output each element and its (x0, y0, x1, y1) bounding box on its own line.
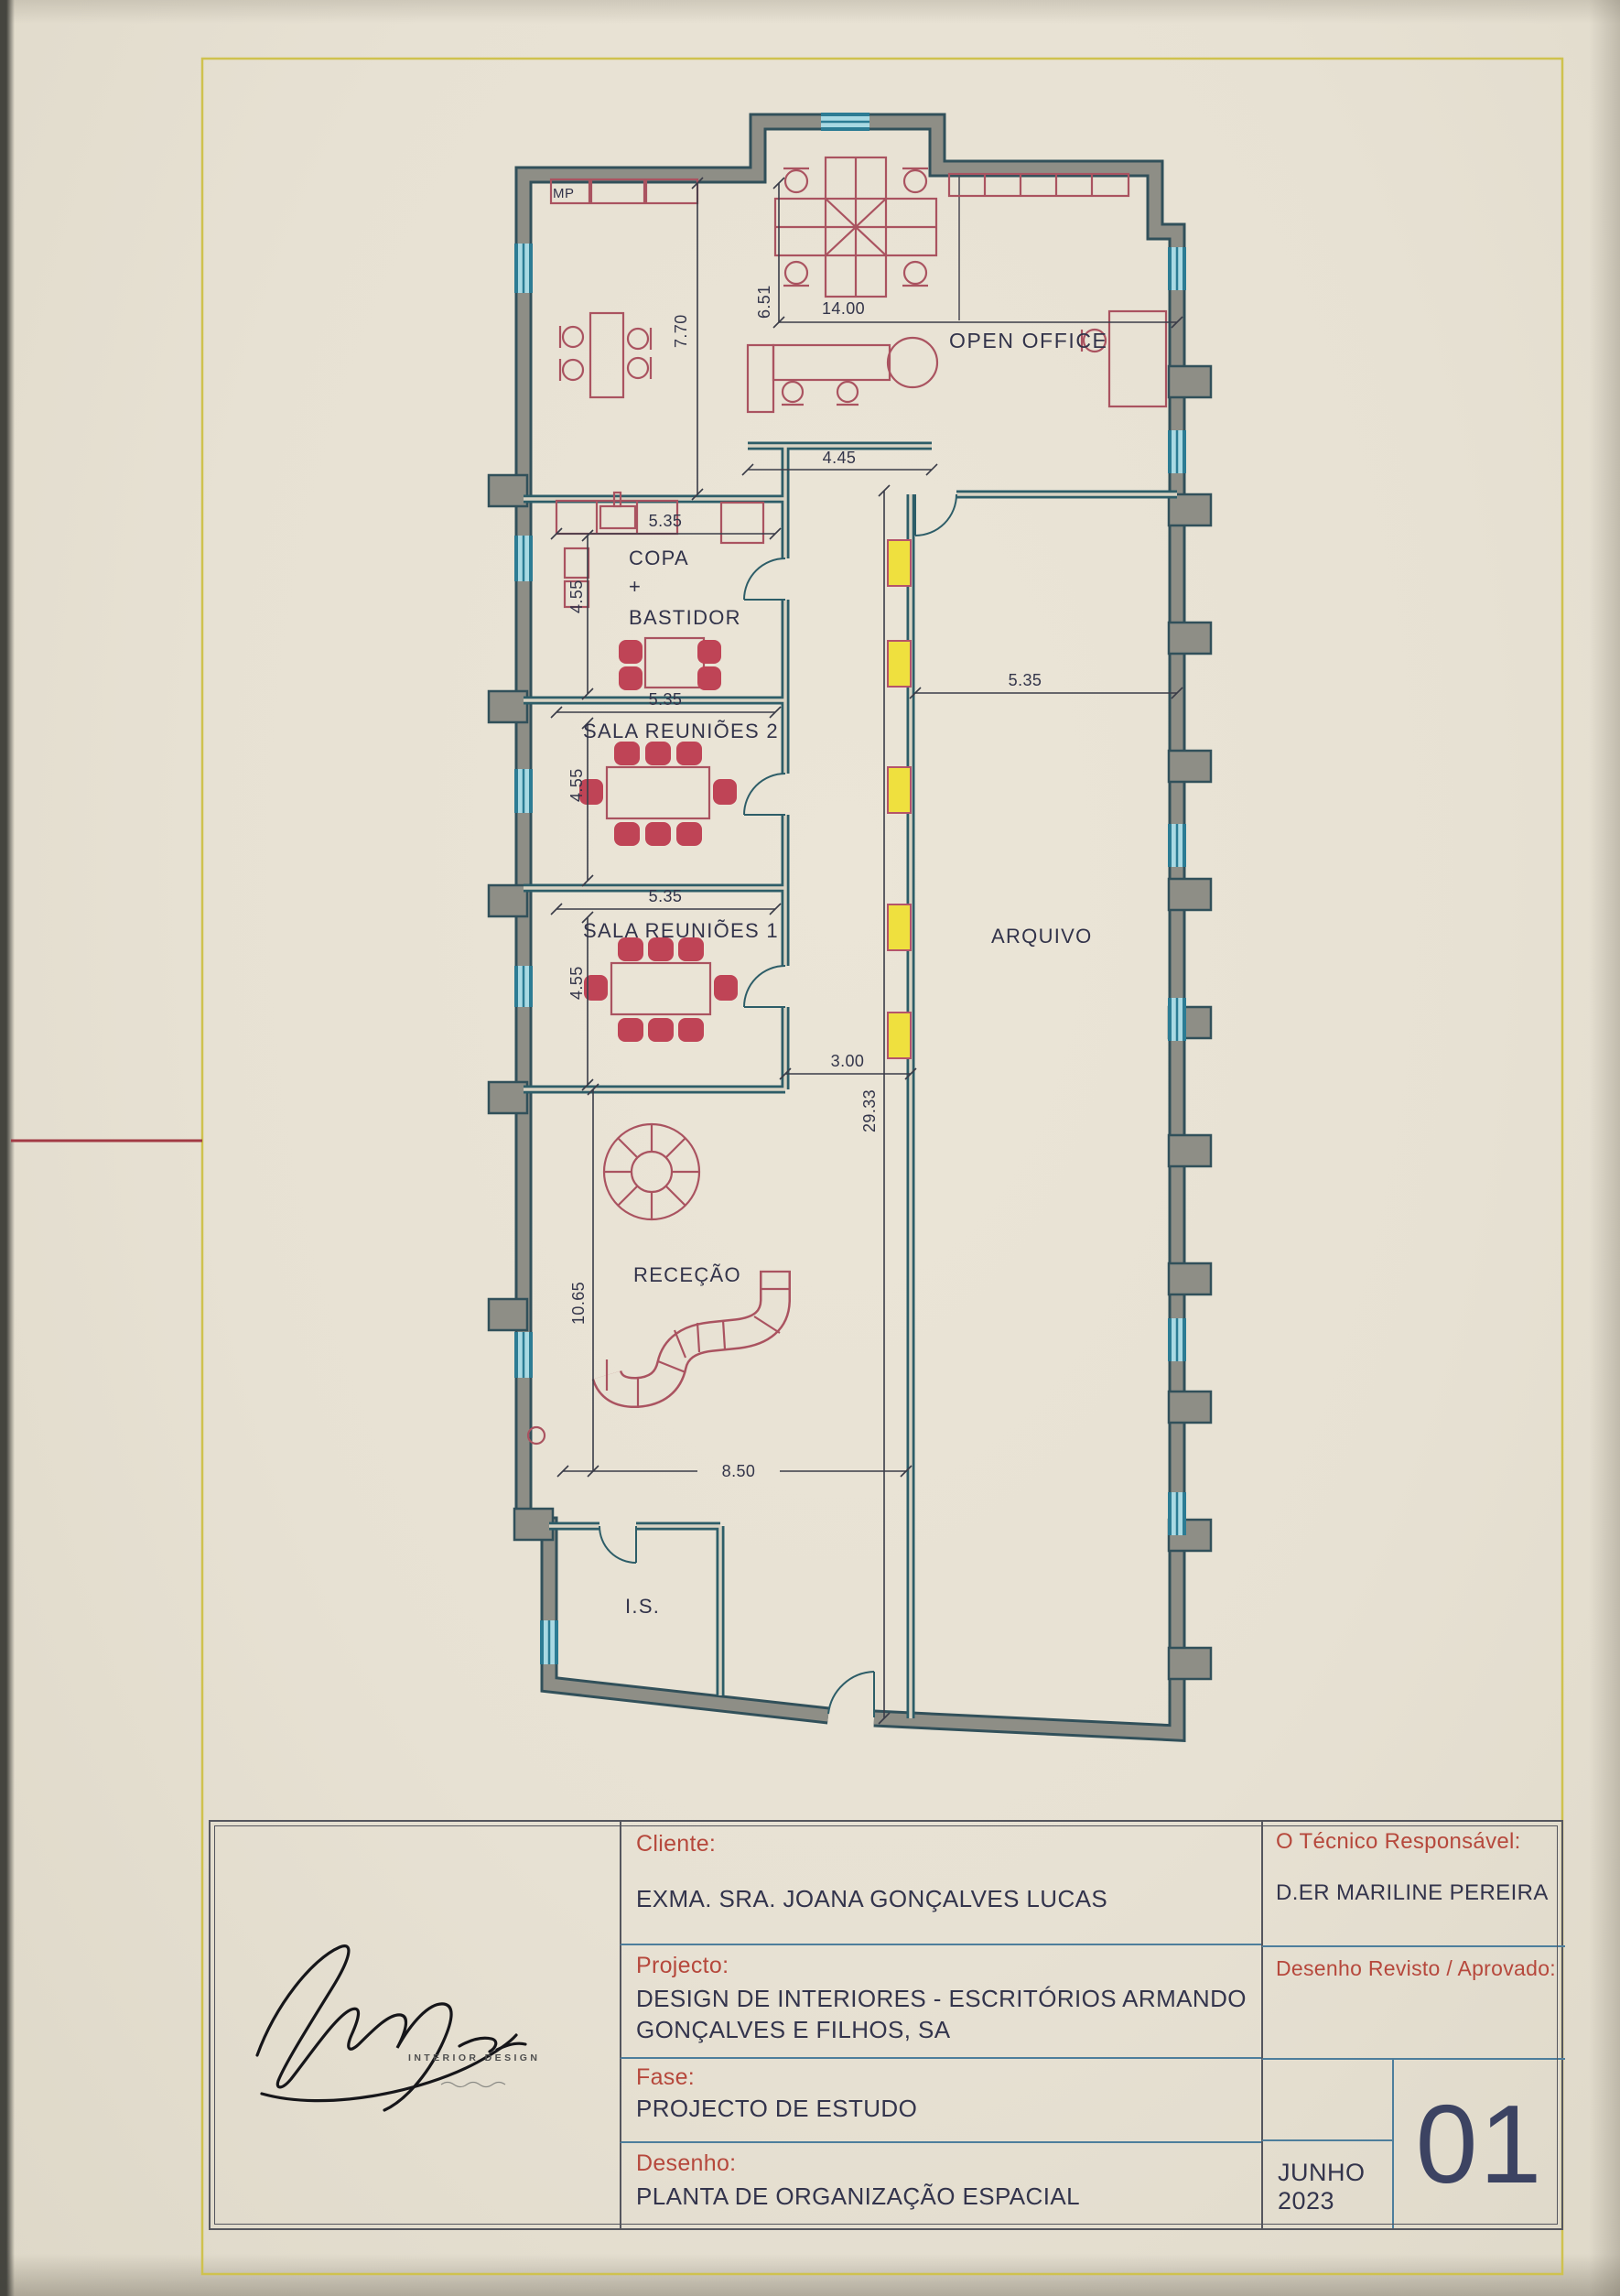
room-label-open-office: OPEN OFFICE (949, 329, 1108, 352)
date-value: JUNHO 2023 (1278, 2159, 1392, 2215)
revisto-cell: Desenho Revisto / Aprovado: (1261, 1947, 1565, 2060)
logo-cell: INTERIOR DESIGN (211, 1822, 620, 2228)
dim-corridor-len: 29.33 (860, 1089, 879, 1132)
windows (524, 122, 1177, 1664)
date-cell: JUNHO 2023 (1261, 2141, 1394, 2228)
desk-cluster (775, 157, 936, 297)
dim-copa-h: 4.55 (567, 579, 586, 613)
dim-sala2-h: 4.55 (567, 768, 586, 802)
room-label-sala2: SALA REUNIÕES 2 (583, 720, 779, 742)
fase-label: Fase: (636, 2064, 1261, 2091)
dim-copa-w: 5.35 (649, 512, 683, 530)
room-label-is: I.S. (625, 1595, 660, 1618)
room-label-bastidor: BASTIDOR (629, 606, 741, 629)
copa-table (645, 638, 704, 688)
dim-top-width: 14.00 (822, 299, 865, 318)
cabinet-row (949, 174, 1129, 196)
dimension-lines (551, 178, 1183, 1724)
desenho-value: PLANTA DE ORGANIZAÇÃO ESPACIAL (636, 2182, 1261, 2211)
dim-sala1-w: 5.35 (649, 887, 683, 905)
dim-left-height: 7.70 (672, 314, 690, 348)
fase-value: PROJECTO DE ESTUDO (636, 2095, 1261, 2123)
tecnico-value: D.ER MARILINE PEREIRA (1276, 1880, 1565, 1906)
meeting-table-1 (611, 963, 710, 1014)
reception-desk (607, 1272, 791, 1408)
room-label-rececao: RECEÇÃO (633, 1263, 741, 1286)
desenho-cell: Desenho: PLANTA DE ORGANIZAÇÃO ESPACIAL (620, 2143, 1261, 2228)
dim-partition: 4.45 (823, 449, 857, 467)
projecto-label: Projecto: (636, 1953, 1261, 1979)
right-desk (1082, 311, 1166, 406)
cliente-value: EXMA. SRA. JOANA GONÇALVES LUCAS (636, 1885, 1261, 1913)
ring-sofa (604, 1124, 699, 1219)
meeting-table-2 (607, 767, 709, 818)
cliente-label: Cliente: (636, 1831, 1261, 1857)
room-label-copa: COPA (629, 547, 689, 569)
dim-arquivo-w: 5.35 (1009, 671, 1042, 689)
desenho-label: Desenho: (636, 2150, 1261, 2177)
room-label-sala1: SALA REUNIÕES 1 (583, 919, 779, 942)
cliente-cell: Cliente: EXMA. SRA. JOANA GONÇALVES LUCA… (620, 1822, 1261, 1945)
tecnico-cell: O Técnico Responsável: D.ER MARILINE PER… (1261, 1822, 1565, 1947)
room-label-plus: + (629, 575, 642, 598)
room-label-mp: MP (553, 186, 575, 201)
scanned-sheet: 6.51 14.00 7.70 4.45 5.35 4.55 5.35 4.55… (0, 0, 1620, 2296)
sheet-number-cell: 01 (1394, 2060, 1565, 2228)
dim-sala1-h: 4.55 (567, 966, 586, 1000)
empty-cell (1261, 2060, 1394, 2141)
fase-cell: Fase: PROJECTO DE ESTUDO (620, 2059, 1261, 2143)
dim-sala2-w: 5.35 (649, 690, 683, 709)
logo-tagline-squiggle (441, 2083, 505, 2087)
room-label-arquivo: ARQUIVO (991, 925, 1093, 948)
projecto-value-line2: GONÇALVES E FILHOS, SA (636, 2014, 1261, 2045)
tecnico-label: O Técnico Responsável: (1276, 1829, 1565, 1855)
title-block: INTERIOR DESIGN Cliente: EXMA. SRA. JOAN… (209, 1820, 1563, 2230)
p-desk (748, 338, 937, 412)
small-desk-group (560, 313, 651, 397)
signature (243, 1932, 573, 2124)
dim-corridor-w: 3.00 (831, 1052, 865, 1070)
revisto-label: Desenho Revisto / Aprovado: (1276, 1956, 1565, 1981)
sheet-number: 01 (1394, 2060, 1565, 2228)
dim-rececao-h: 10.65 (569, 1282, 588, 1325)
dim-rececao-w: 8.50 (722, 1462, 756, 1480)
projecto-value-line1: DESIGN DE INTERIORES - ESCRITÓRIOS ARMAN… (636, 1983, 1261, 2014)
logo-brand-text: INTERIOR DESIGN (408, 2052, 540, 2063)
dimension-labels: 6.51 14.00 7.70 4.45 5.35 4.55 5.35 4.55… (567, 285, 1042, 1480)
dim-top-height: 6.51 (755, 285, 773, 319)
projecto-cell: Projecto: DESIGN DE INTERIORES - ESCRITÓ… (620, 1945, 1261, 2059)
